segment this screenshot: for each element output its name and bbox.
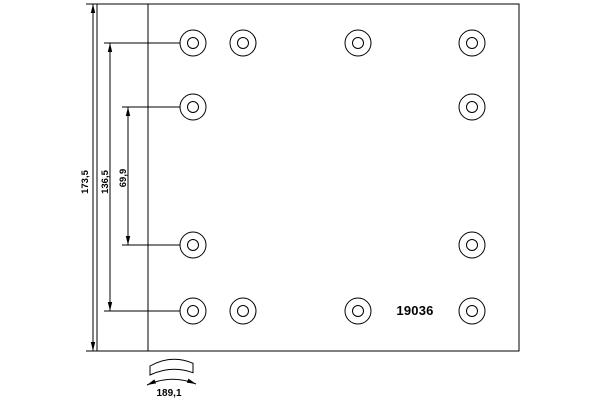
rivet-hole-outer: [180, 30, 206, 56]
curvature-end-view: 189,1: [146, 359, 197, 399]
arc-arrow-left-icon: [146, 379, 156, 387]
rivet-hole-inner: [467, 102, 478, 113]
rivet-hole-inner: [467, 306, 478, 317]
rivet-hole-outer: [459, 232, 485, 258]
lining-outline: [86, 4, 519, 351]
dim-arrow-up-icon: [126, 107, 130, 116]
rivet-hole-outer: [345, 298, 371, 324]
dimension-label-outer-rivet-spacing: 136,5: [100, 169, 111, 193]
rivet-hole-inner: [188, 102, 199, 113]
rivet-hole-inner: [467, 240, 478, 251]
lining-outline-rect: [97, 4, 519, 351]
dimension-label-arc-width: 189,1: [156, 388, 181, 399]
dim-arrow-up-icon: [108, 43, 112, 52]
rivet-hole-inner: [188, 240, 199, 251]
rivet-hole-outer: [459, 94, 485, 120]
dim-arrow-down-icon: [91, 342, 95, 351]
rivet-hole-inner: [353, 306, 364, 317]
rivet-hole-outer: [459, 298, 485, 324]
curved-lining-section: [150, 359, 193, 375]
rivet-hole-outer: [230, 298, 256, 324]
dimension-overall-height: 173,5: [80, 4, 95, 351]
dim-arrow-down-icon: [126, 236, 130, 245]
rivet-hole-outer: [180, 94, 206, 120]
rivet-hole-outer: [180, 232, 206, 258]
arc-arrow-right-icon: [187, 379, 197, 386]
dim-arrow-up-icon: [91, 4, 95, 13]
rivet-holes: [180, 30, 485, 324]
dim-arrow-down-icon: [108, 302, 112, 311]
rivet-hole-outer: [180, 298, 206, 324]
dimension-outer-rivet-spacing: 136,5: [100, 43, 180, 311]
rivet-hole-inner: [238, 38, 249, 49]
brake-lining-technical-drawing: 173,5 136,5 69,9 19036 189: [0, 0, 600, 400]
dimension-inner-rivet-spacing: 69,9: [118, 107, 180, 245]
dimension-label-overall-height: 173,5: [80, 169, 91, 193]
rivet-hole-outer: [230, 30, 256, 56]
dimension-label-inner-rivet-spacing: 69,9: [118, 169, 129, 188]
rivet-hole-inner: [188, 306, 199, 317]
drawing-canvas: 173,5 136,5 69,9 19036 189: [0, 0, 600, 400]
rivet-hole-inner: [188, 38, 199, 49]
rivet-hole-outer: [459, 30, 485, 56]
rivet-hole-outer: [345, 30, 371, 56]
part-number: 19036: [396, 303, 433, 318]
rivet-hole-inner: [238, 306, 249, 317]
rivet-hole-inner: [353, 38, 364, 49]
rivet-hole-inner: [467, 38, 478, 49]
